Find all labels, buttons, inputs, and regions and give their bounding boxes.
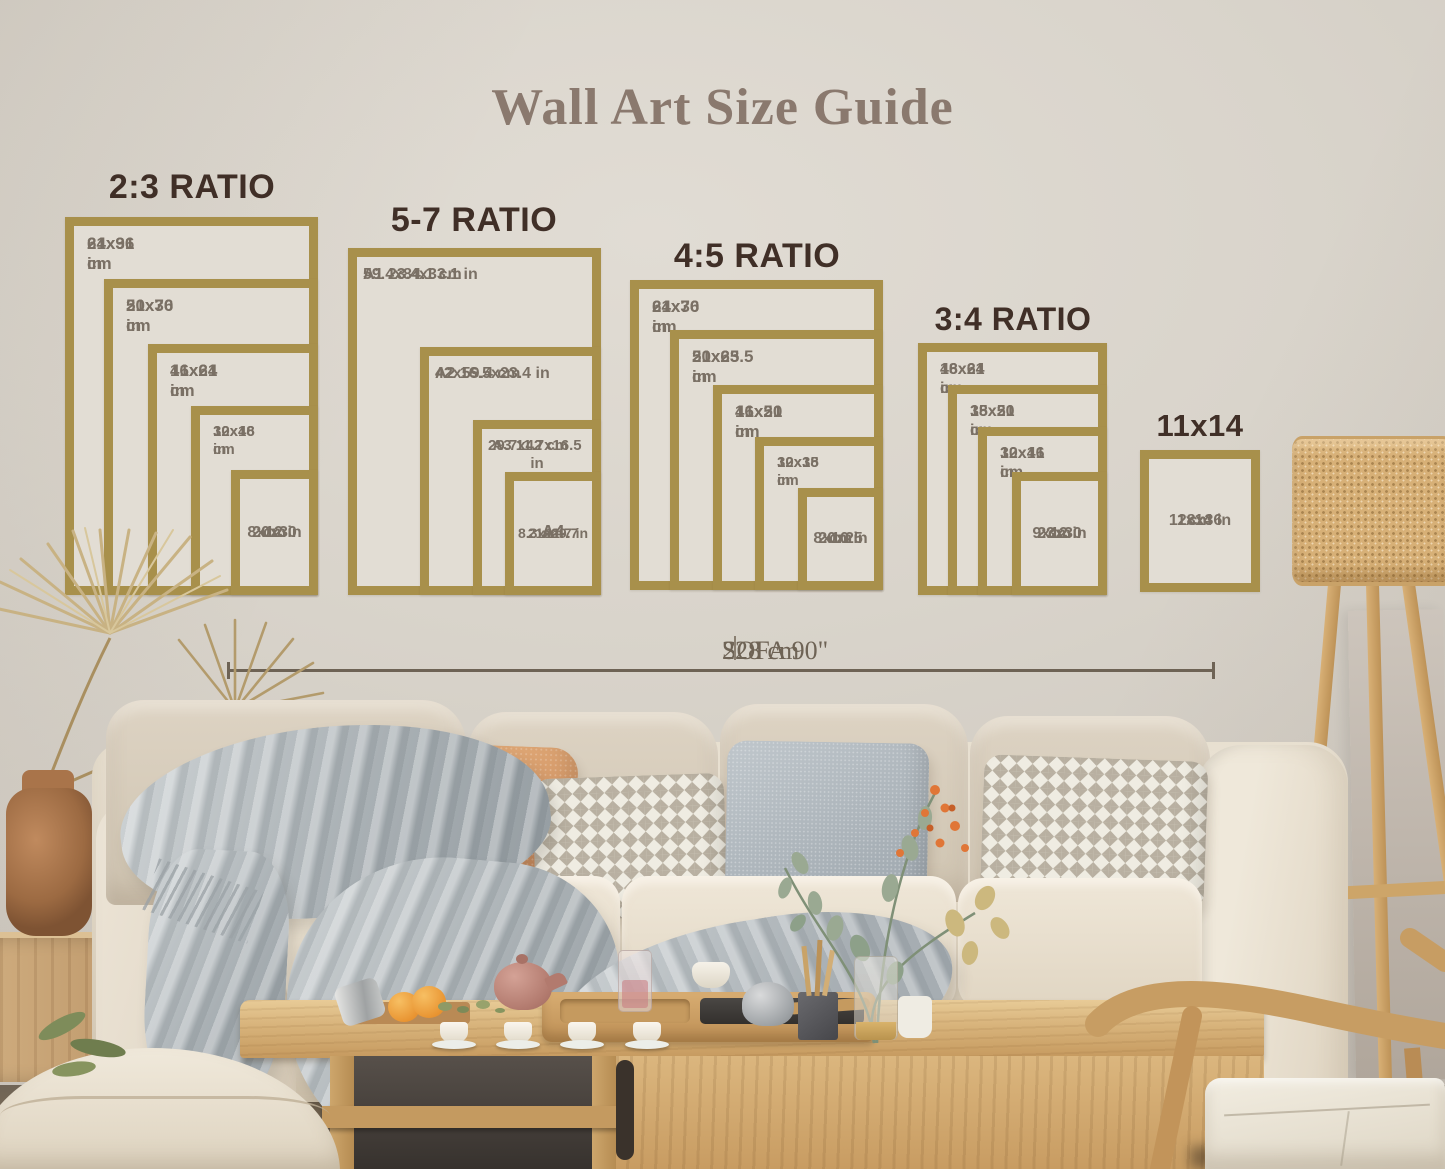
white-bowl xyxy=(692,962,730,988)
frame-8x10: 8x10 in20x25cm xyxy=(798,488,883,590)
frame-a2: A2 16.5x23.4 in42x59.4 cm A3 11.7x16.5 i… xyxy=(420,347,601,595)
frame-a1: A1 23.4x33.1 in59.4x84.1 cm A2 16.5x23.4… xyxy=(348,248,601,595)
ratio-title-4-5: 4:5 RATIO xyxy=(674,237,840,276)
ratio-title-2-3: 2:3 RATIO xyxy=(109,168,275,207)
tea-liquid xyxy=(622,980,648,1008)
frame-11x14: 11x14 in28x36cm xyxy=(1140,450,1260,592)
frame-9x12: 9x12 in23x30cm xyxy=(1012,472,1107,595)
tea-cup xyxy=(633,1022,661,1042)
ratio-title-11x14: 11x14 xyxy=(1157,408,1244,444)
tea-cup xyxy=(504,1022,532,1042)
pink-teapot xyxy=(494,962,552,1010)
frame-label: A48.3x11.7 in21x29.7cm xyxy=(514,481,592,586)
terracotta-vase xyxy=(6,788,92,936)
drawer-handle-slot xyxy=(616,1060,634,1160)
ratio-title-3-4: 3:4 RATIO xyxy=(935,301,1092,338)
frame-label: 8x10 in20x25cm xyxy=(807,497,874,581)
teapot-knob xyxy=(516,954,528,964)
frame-label: 9x12 in23x30cm xyxy=(1021,481,1098,586)
sofa-width-cm: 228 cm xyxy=(722,636,799,666)
frame-20x25: 20x25 in51x63.5 cm 16x20 in41x51 cm 12x1… xyxy=(670,330,883,590)
rattan-lamp-shade xyxy=(1292,436,1445,586)
scattered-leaves xyxy=(438,1002,452,1011)
frame-24x30: 24x30 in61x76 cm 20x25 in51x63.5 cm 16x2… xyxy=(630,280,883,590)
white-pot xyxy=(898,996,932,1038)
frame-a4: A48.3x11.7 in21x29.7cm xyxy=(505,472,601,595)
chair-cushion xyxy=(1205,1078,1445,1169)
tea-cup xyxy=(568,1022,596,1042)
frame-label: 11x14 in28x36cm xyxy=(1149,459,1251,583)
wall-art-size-guide-poster: Wall Art Size Guide 2:3 RATIO 5-7 RATIO … xyxy=(0,0,1445,1169)
pouf-seam xyxy=(0,1096,330,1136)
vase-gold-band xyxy=(856,1022,896,1040)
ratio-title-5-7: 5-7 RATIO xyxy=(391,201,557,240)
tea-cup xyxy=(440,1022,468,1042)
page-title: Wall Art Size Guide xyxy=(491,78,953,137)
frame-12x15: 12x15 in30x38 cm 8x10 in20x25cm xyxy=(755,437,883,590)
frame-a3: A3 11.7x16.5 in29.7x42 cm A48.3x11.7 in2… xyxy=(473,420,601,595)
table-shelf xyxy=(322,1106,622,1128)
frame-16x20: 16x20 in41x51 cm 12x15 in30x38 cm 8x10 i… xyxy=(713,385,883,590)
frame-15x20: 15x20 in38x51 cm 12x16 in30x41 cm 9x12 i… xyxy=(948,385,1107,595)
frame-12x16: 12x16 in30x41 cm 9x12 in23x30cm xyxy=(978,427,1107,595)
frame-18x24: 18x24 in46x61 cm 15x20 in38x51 cm 12x16 … xyxy=(918,343,1107,595)
